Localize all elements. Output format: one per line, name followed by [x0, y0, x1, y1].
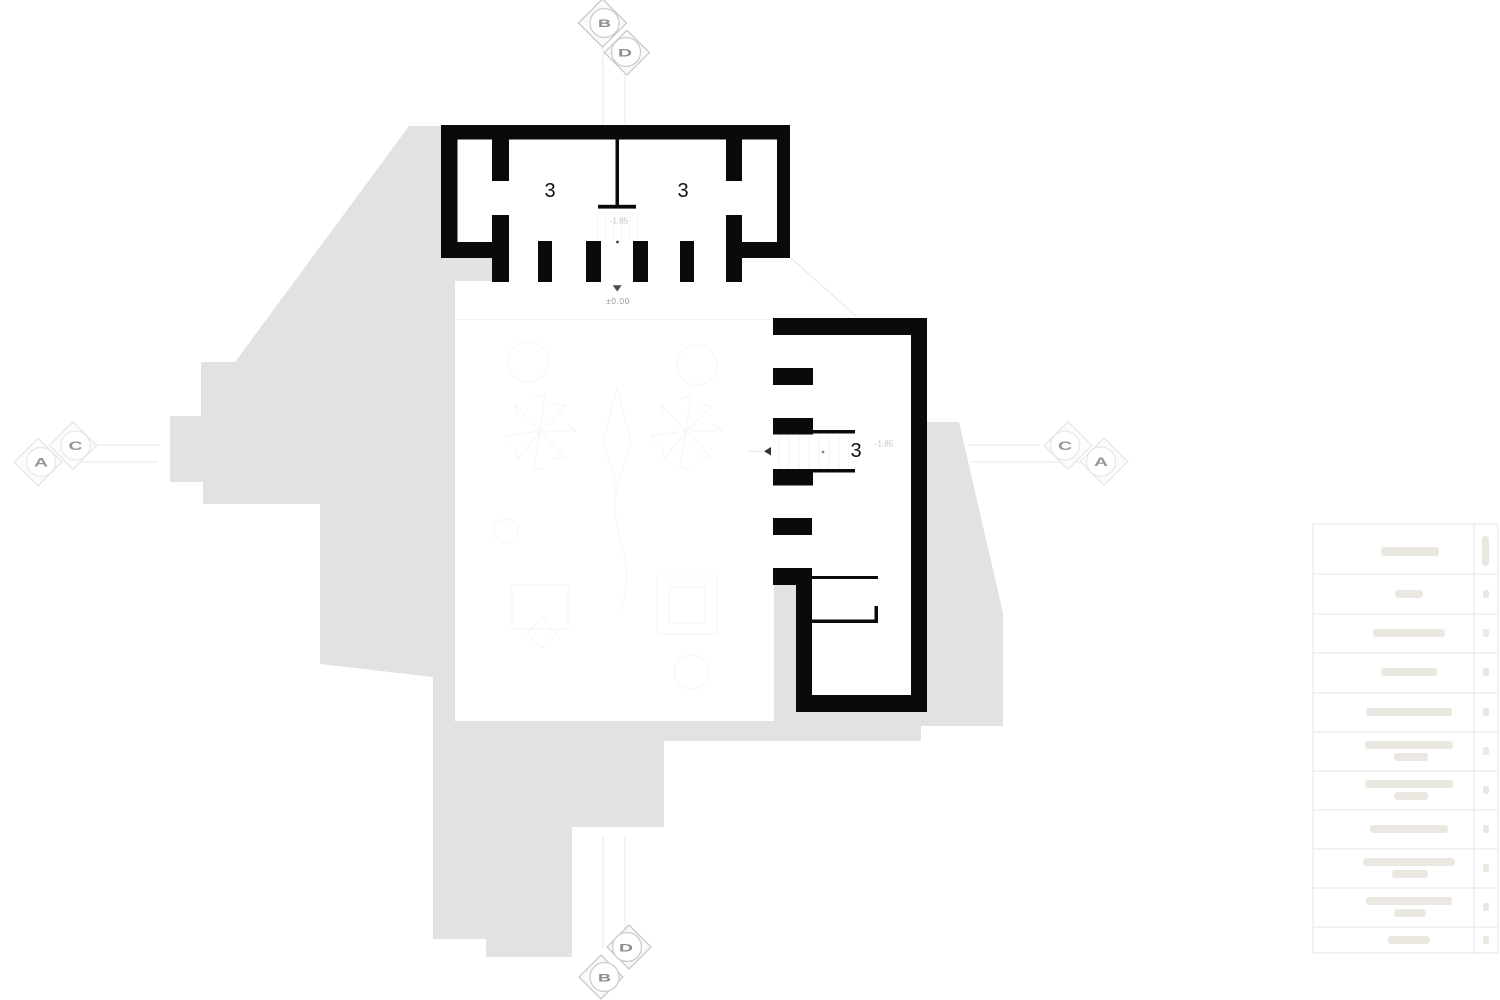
svg-text:D: D	[618, 48, 632, 60]
svg-text:A: A	[34, 458, 48, 470]
svg-text:A: A	[1094, 457, 1108, 469]
svg-text:B: B	[598, 18, 611, 30]
svg-text:3: 3	[850, 440, 861, 462]
svg-text:3: 3	[677, 180, 688, 202]
svg-text:-1.85: -1.85	[875, 440, 894, 449]
svg-text:B: B	[598, 973, 611, 985]
svg-text:C: C	[69, 441, 83, 453]
svg-text:-1.85: -1.85	[610, 217, 629, 226]
svg-text:D: D	[619, 943, 633, 955]
svg-text:±0.00: ±0.00	[606, 296, 630, 306]
svg-text:3: 3	[544, 180, 555, 202]
svg-text:C: C	[1058, 441, 1072, 453]
